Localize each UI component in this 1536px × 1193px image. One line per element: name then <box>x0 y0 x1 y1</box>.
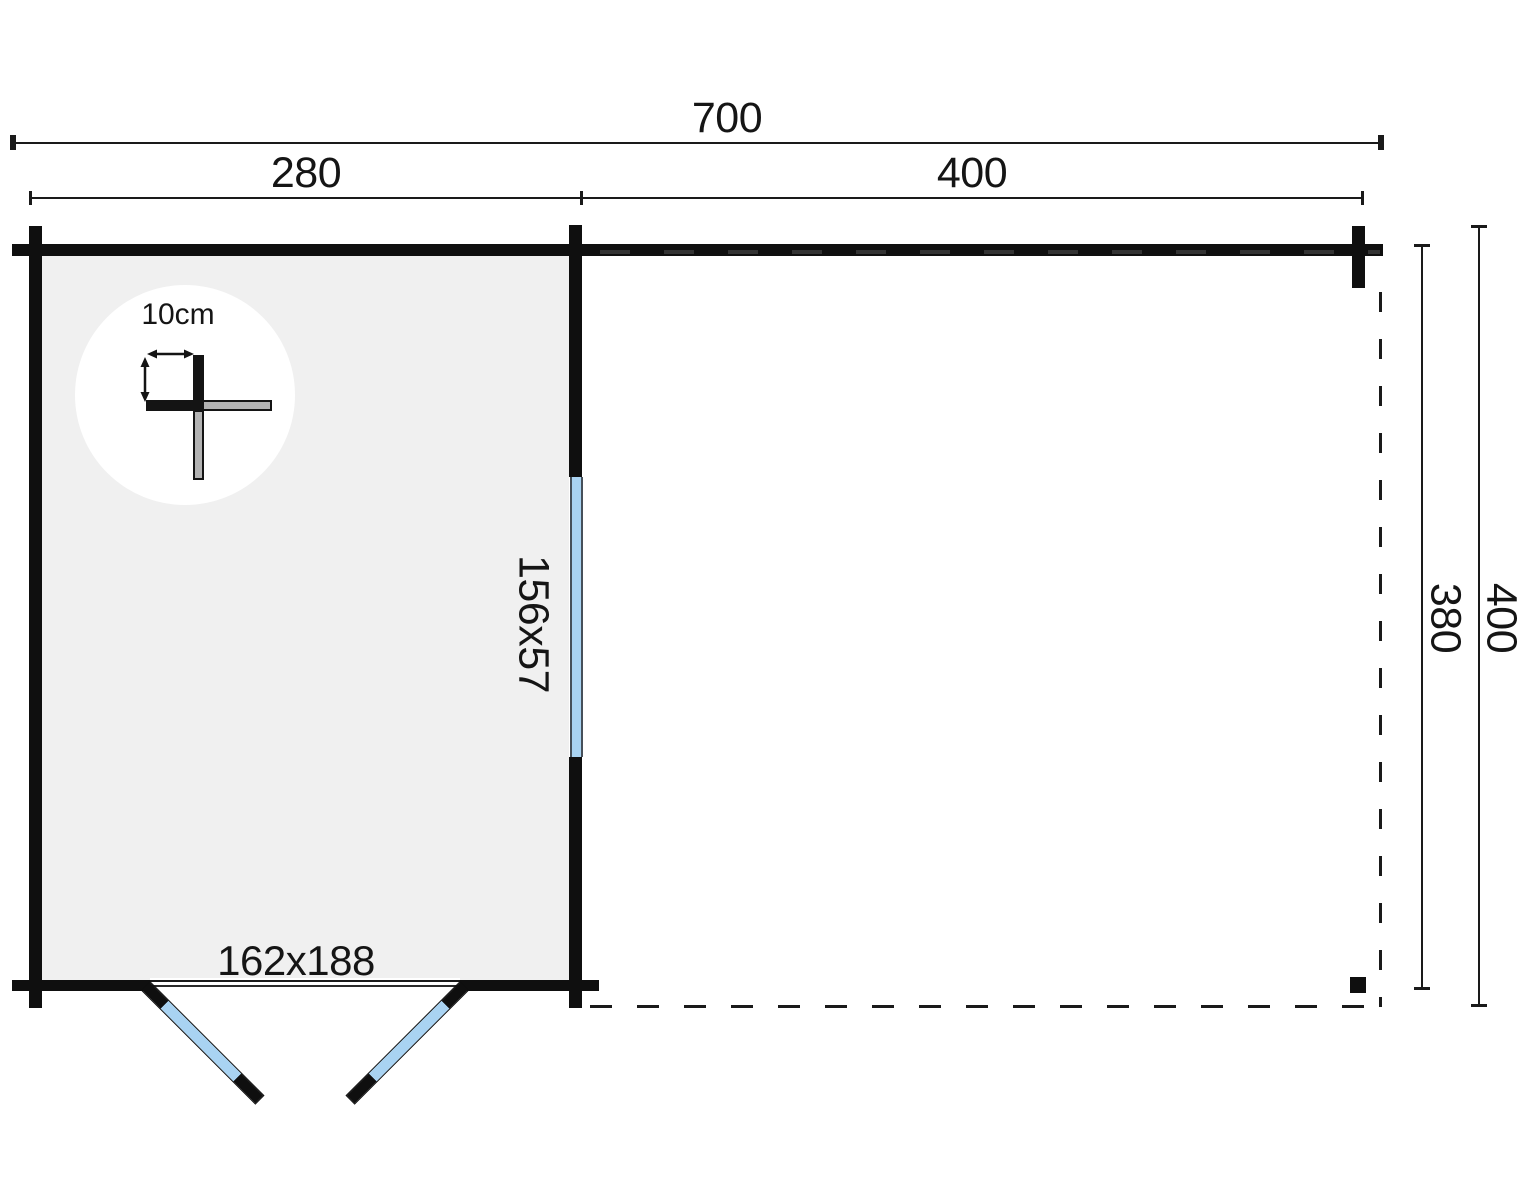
detail-log-gray-horizontal <box>202 400 272 411</box>
dim-label-canopy-width: 400 <box>937 152 1007 195</box>
door-leaf-right <box>345 981 469 1105</box>
dim-line-total-width <box>13 142 1381 144</box>
detail-log-gray-vertical <box>193 410 204 480</box>
window-glass <box>570 477 583 757</box>
thickness-arrows-icon <box>135 345 205 407</box>
dim-label-canopy-depth: 380 <box>1424 583 1467 653</box>
door-threshold-line <box>150 985 460 987</box>
window-size-label: 156x57 <box>512 555 555 693</box>
dim-tick <box>1414 987 1430 990</box>
wall-bottom-left-segment <box>12 980 150 991</box>
door-size-label: 162x188 <box>217 940 375 982</box>
canopy-corner-post-bottom-right <box>1350 977 1366 993</box>
canopy-beam-dashes <box>600 250 1380 254</box>
dim-tick <box>1361 191 1364 205</box>
canopy-dashed-outline-right <box>1379 292 1382 1007</box>
dim-tick <box>1378 135 1384 150</box>
canopy-corner-post-top-right <box>1352 226 1365 288</box>
wall-left <box>29 226 42 1008</box>
door-leaf-left <box>141 981 265 1105</box>
dim-tick <box>1471 225 1487 228</box>
wall-cabin-right-lower <box>569 757 582 1008</box>
dim-line-canopy-width <box>582 197 1363 199</box>
dim-label-total-depth: 400 <box>1480 583 1523 653</box>
dim-tick <box>580 191 583 205</box>
dim-tick <box>1471 1004 1487 1007</box>
floor-plan: 700 280 400 380 400 156x57 162x188 10cm <box>0 0 1536 1193</box>
dim-tick <box>10 135 16 150</box>
dim-line-cabin-width <box>31 197 582 199</box>
canopy-dashed-outline-bottom <box>590 1005 1380 1008</box>
dim-label-total-width: 700 <box>692 97 762 140</box>
dim-label-cabin-width: 280 <box>271 152 341 195</box>
wall-thickness-label: 10cm <box>108 300 248 330</box>
dim-tick <box>29 191 32 205</box>
wall-cabin-right-upper <box>569 225 582 477</box>
dim-tick <box>1414 244 1430 247</box>
